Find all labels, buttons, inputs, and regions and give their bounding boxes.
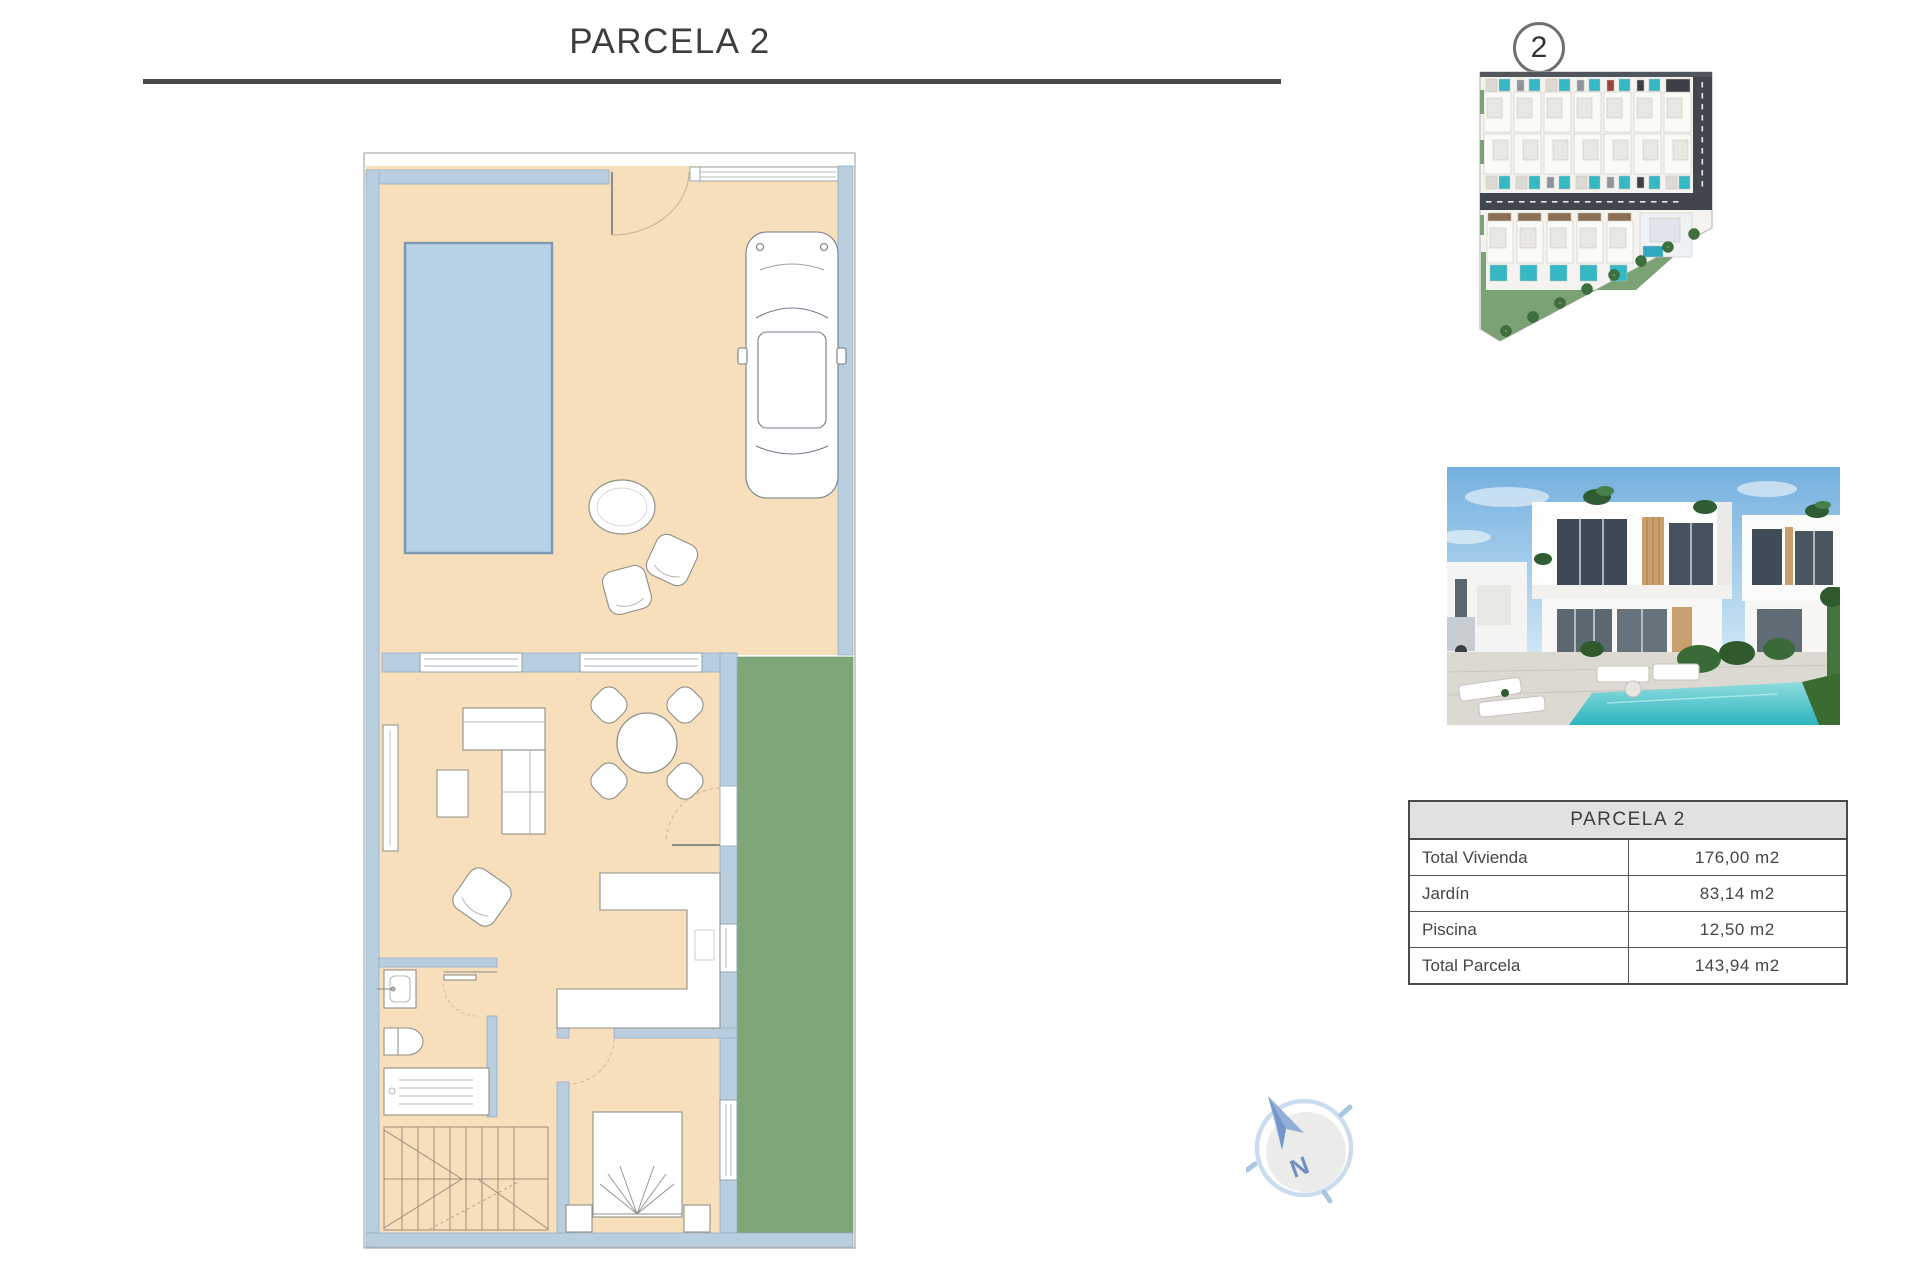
car-outline [738, 232, 846, 498]
parcel-badge: 2 [1513, 22, 1565, 74]
table-row: Total Vivienda 176,00 m2 [1409, 839, 1847, 876]
title-underline [143, 79, 1281, 84]
bathtub [384, 1068, 489, 1115]
brochure-page: PARCELA 2 [0, 0, 1920, 1280]
toilet [384, 1028, 423, 1055]
terrace-table [589, 480, 655, 534]
row-label: Piscina [1409, 912, 1628, 948]
row-value: 12,50 m2 [1628, 912, 1847, 948]
villa-row-top [1484, 79, 1691, 189]
row-value: 83,14 m2 [1628, 876, 1847, 912]
row-label: Jardín [1409, 876, 1628, 912]
villa-photo [1447, 467, 1840, 725]
site-plan-map [1478, 70, 1718, 345]
row-label: Total Vivienda [1409, 839, 1628, 876]
table-row: Jardín 83,14 m2 [1409, 876, 1847, 912]
summary-table-header-row: PARCELA 2 [1409, 801, 1847, 839]
table-row: Piscina 12,50 m2 [1409, 912, 1847, 948]
nightstand [566, 1205, 592, 1232]
tv-bench [383, 725, 398, 851]
page-title: PARCELA 2 [569, 22, 771, 62]
garden-strip [737, 657, 853, 1233]
coffee-table [437, 770, 468, 817]
compass-icon: N [1246, 1092, 1360, 1206]
row-label: Total Parcela [1409, 948, 1628, 985]
summary-table: PARCELA 2 Total Vivienda 176,00 m2 Jardí… [1408, 800, 1848, 985]
nightstand [684, 1205, 710, 1232]
parcel-badge-number: 2 [1531, 31, 1548, 65]
pool [405, 243, 552, 553]
driveway-gate [690, 167, 838, 181]
background-villa [1447, 562, 1527, 657]
floor-plan-drawing [363, 150, 859, 1252]
row-value: 143,94 m2 [1628, 948, 1847, 985]
table-row: Total Parcela 143,94 m2 [1409, 948, 1847, 985]
row-value: 176,00 m2 [1628, 839, 1847, 876]
summary-table-title: PARCELA 2 [1409, 801, 1847, 839]
